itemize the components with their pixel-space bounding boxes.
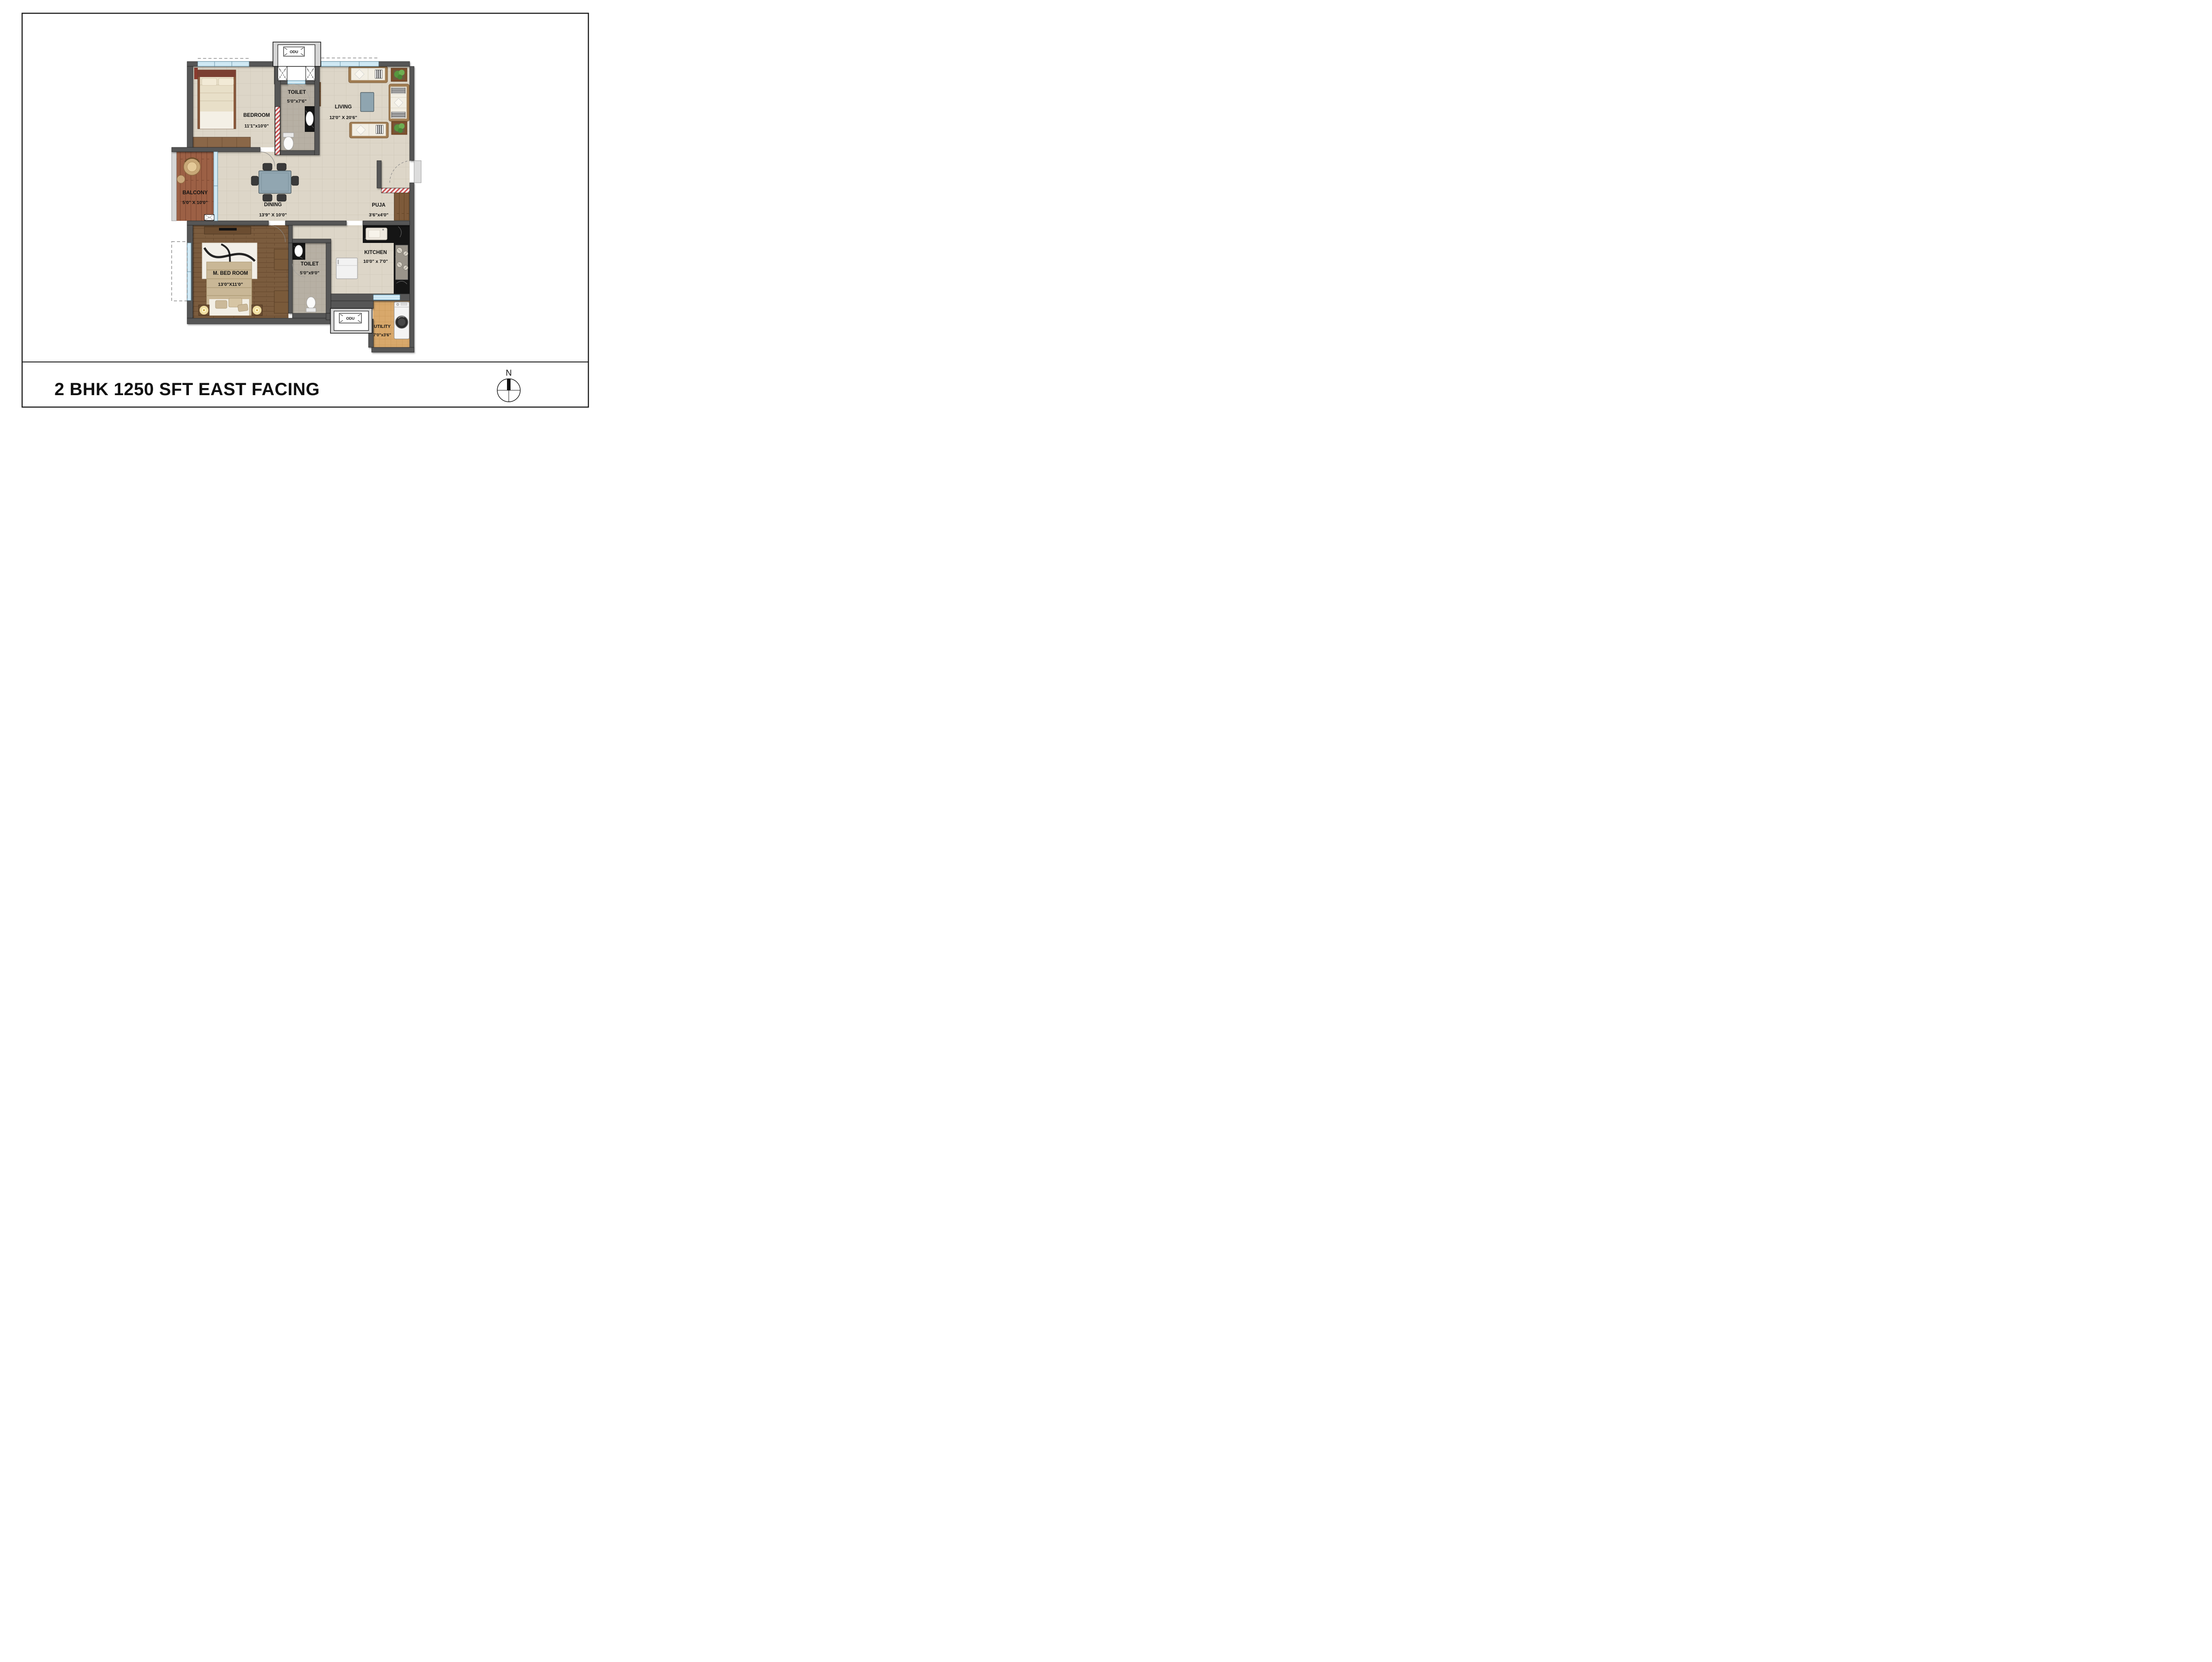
wall-shaft-bottom-right <box>305 81 315 84</box>
bedroom-name: BEDROOM <box>243 113 270 118</box>
master-bed <box>207 262 252 315</box>
dining-chair <box>277 194 286 201</box>
entrance-step <box>414 161 421 183</box>
nightstand-left <box>199 305 209 315</box>
refrigerator <box>336 258 357 279</box>
coffee-table <box>361 92 374 112</box>
wall-toilet-kitchen <box>326 243 331 313</box>
wall-toilet-bottom-bottom <box>292 313 331 318</box>
bedroom-window <box>198 62 249 66</box>
sofa-three-seater-right <box>389 84 409 121</box>
balcony-duct-box <box>204 215 214 220</box>
gas-hob <box>396 245 408 280</box>
duct-box-left <box>278 66 287 81</box>
toilet-bottom-name: TOILET <box>301 262 319 267</box>
wall-mid-right <box>363 221 410 225</box>
living-name: LIVING <box>335 104 352 110</box>
kitchen-passage-floor <box>292 225 331 239</box>
wall-right-lower <box>410 183 414 352</box>
balcony-sliding-window <box>214 152 218 221</box>
toilet-top-window <box>288 81 305 84</box>
double-bed <box>198 70 236 129</box>
utility-dims: 7'0"x3'6" <box>373 333 391 338</box>
wall-toilet-bottom-top <box>292 239 331 243</box>
living-dims: 12'0" X 20'6" <box>330 115 357 120</box>
toilet-bottom-dims: 5'0"x9'0" <box>300 270 319 276</box>
wall-passage-stub <box>288 225 292 243</box>
balcony-dims: 5'0" X 10'0" <box>183 200 208 205</box>
planter-top <box>391 68 407 81</box>
floor-plan-page: ODU ODU <box>0 0 597 415</box>
kitchen-name: KITCHEN <box>364 250 387 255</box>
master-wardrobe-upper <box>274 249 289 270</box>
wall-bedroom-bottom <box>172 147 260 152</box>
utility-fixtures <box>394 302 409 339</box>
floor-plan-canvas: ODU ODU <box>0 0 597 415</box>
toilet-bottom-wc <box>306 297 316 312</box>
utility-window <box>373 295 400 300</box>
wall-master-bottom <box>187 318 334 324</box>
balcony-railing <box>172 152 177 221</box>
wall-left-upper <box>187 66 193 152</box>
odu-bottom-unit: ODU <box>330 308 372 333</box>
tv-unit <box>204 227 251 234</box>
wall-toilet-top-bottom <box>280 150 315 155</box>
hatched-wall-puja <box>381 188 410 193</box>
odu-bottom-label: ODU <box>346 316 355 321</box>
compass-north-pointer <box>507 379 511 390</box>
wall-mid-center <box>285 221 346 225</box>
nightstand-right <box>252 305 262 315</box>
wall-right-upper <box>410 66 414 161</box>
hatched-wall-bedroom <box>275 107 280 155</box>
wall-master-toilet <box>288 243 292 313</box>
dining-chair <box>263 194 272 201</box>
sofa-two-seater-bottom <box>349 122 388 138</box>
dining-table <box>259 171 291 193</box>
dining-chair <box>292 176 299 185</box>
balcony-name: BALCONY <box>183 190 208 196</box>
living-window <box>321 62 379 66</box>
dining-dims: 13'9" X 10'0" <box>259 212 287 218</box>
toilet-top-wc <box>283 133 294 150</box>
toilet-top-dims: 5'0"x7'6" <box>287 99 307 104</box>
odu-top-box: ODU <box>284 47 304 56</box>
toilet-bottom-washbasin <box>295 245 303 257</box>
odu-top-label: ODU <box>290 50 298 54</box>
puja-cabinet <box>394 193 409 220</box>
duct-box-right <box>306 66 315 81</box>
planter-bottom <box>392 122 407 135</box>
odu-bottom-box: ODU <box>339 313 361 323</box>
wall-foyer <box>377 161 381 188</box>
dining-name: DINING <box>264 202 282 208</box>
washing-machine <box>394 302 409 339</box>
north-compass: N <box>497 369 520 402</box>
master-wardrobe-lower <box>274 291 289 313</box>
sofa-two-seater-top <box>349 66 388 83</box>
bedroom-dims: 11'1"x10'0" <box>244 123 269 129</box>
dining-chair <box>251 176 258 185</box>
dining-chair <box>263 163 272 170</box>
plan-title: 2 BHK 1250 SFT EAST FACING <box>54 380 320 399</box>
bedroom-corner-unit <box>194 68 198 79</box>
north-label: N <box>506 369 512 378</box>
wall-below-kitchen <box>331 301 373 308</box>
wall-mid-left <box>187 221 269 225</box>
puja-dims: 3'6"x4'0" <box>369 212 388 218</box>
toilet-top-washbasin <box>306 112 314 126</box>
puja-name: PUJA <box>372 203 386 208</box>
wall-toilet-living <box>315 66 319 155</box>
kitchen-dims: 10'0" x 7'0" <box>363 259 388 264</box>
balcony-side-table <box>177 175 185 183</box>
master-dims: 13'0"X11'0" <box>218 282 243 287</box>
bedroom-wardrobe <box>193 137 250 147</box>
dashed-box-master <box>172 242 187 301</box>
toilet-top-name: TOILET <box>288 90 306 95</box>
dining-chair <box>277 163 286 170</box>
master-name: M. BED ROOM <box>213 271 248 276</box>
master-window <box>187 243 191 300</box>
wall-utility-bottom <box>372 347 414 352</box>
utility-name: UTILITY <box>374 324 391 329</box>
